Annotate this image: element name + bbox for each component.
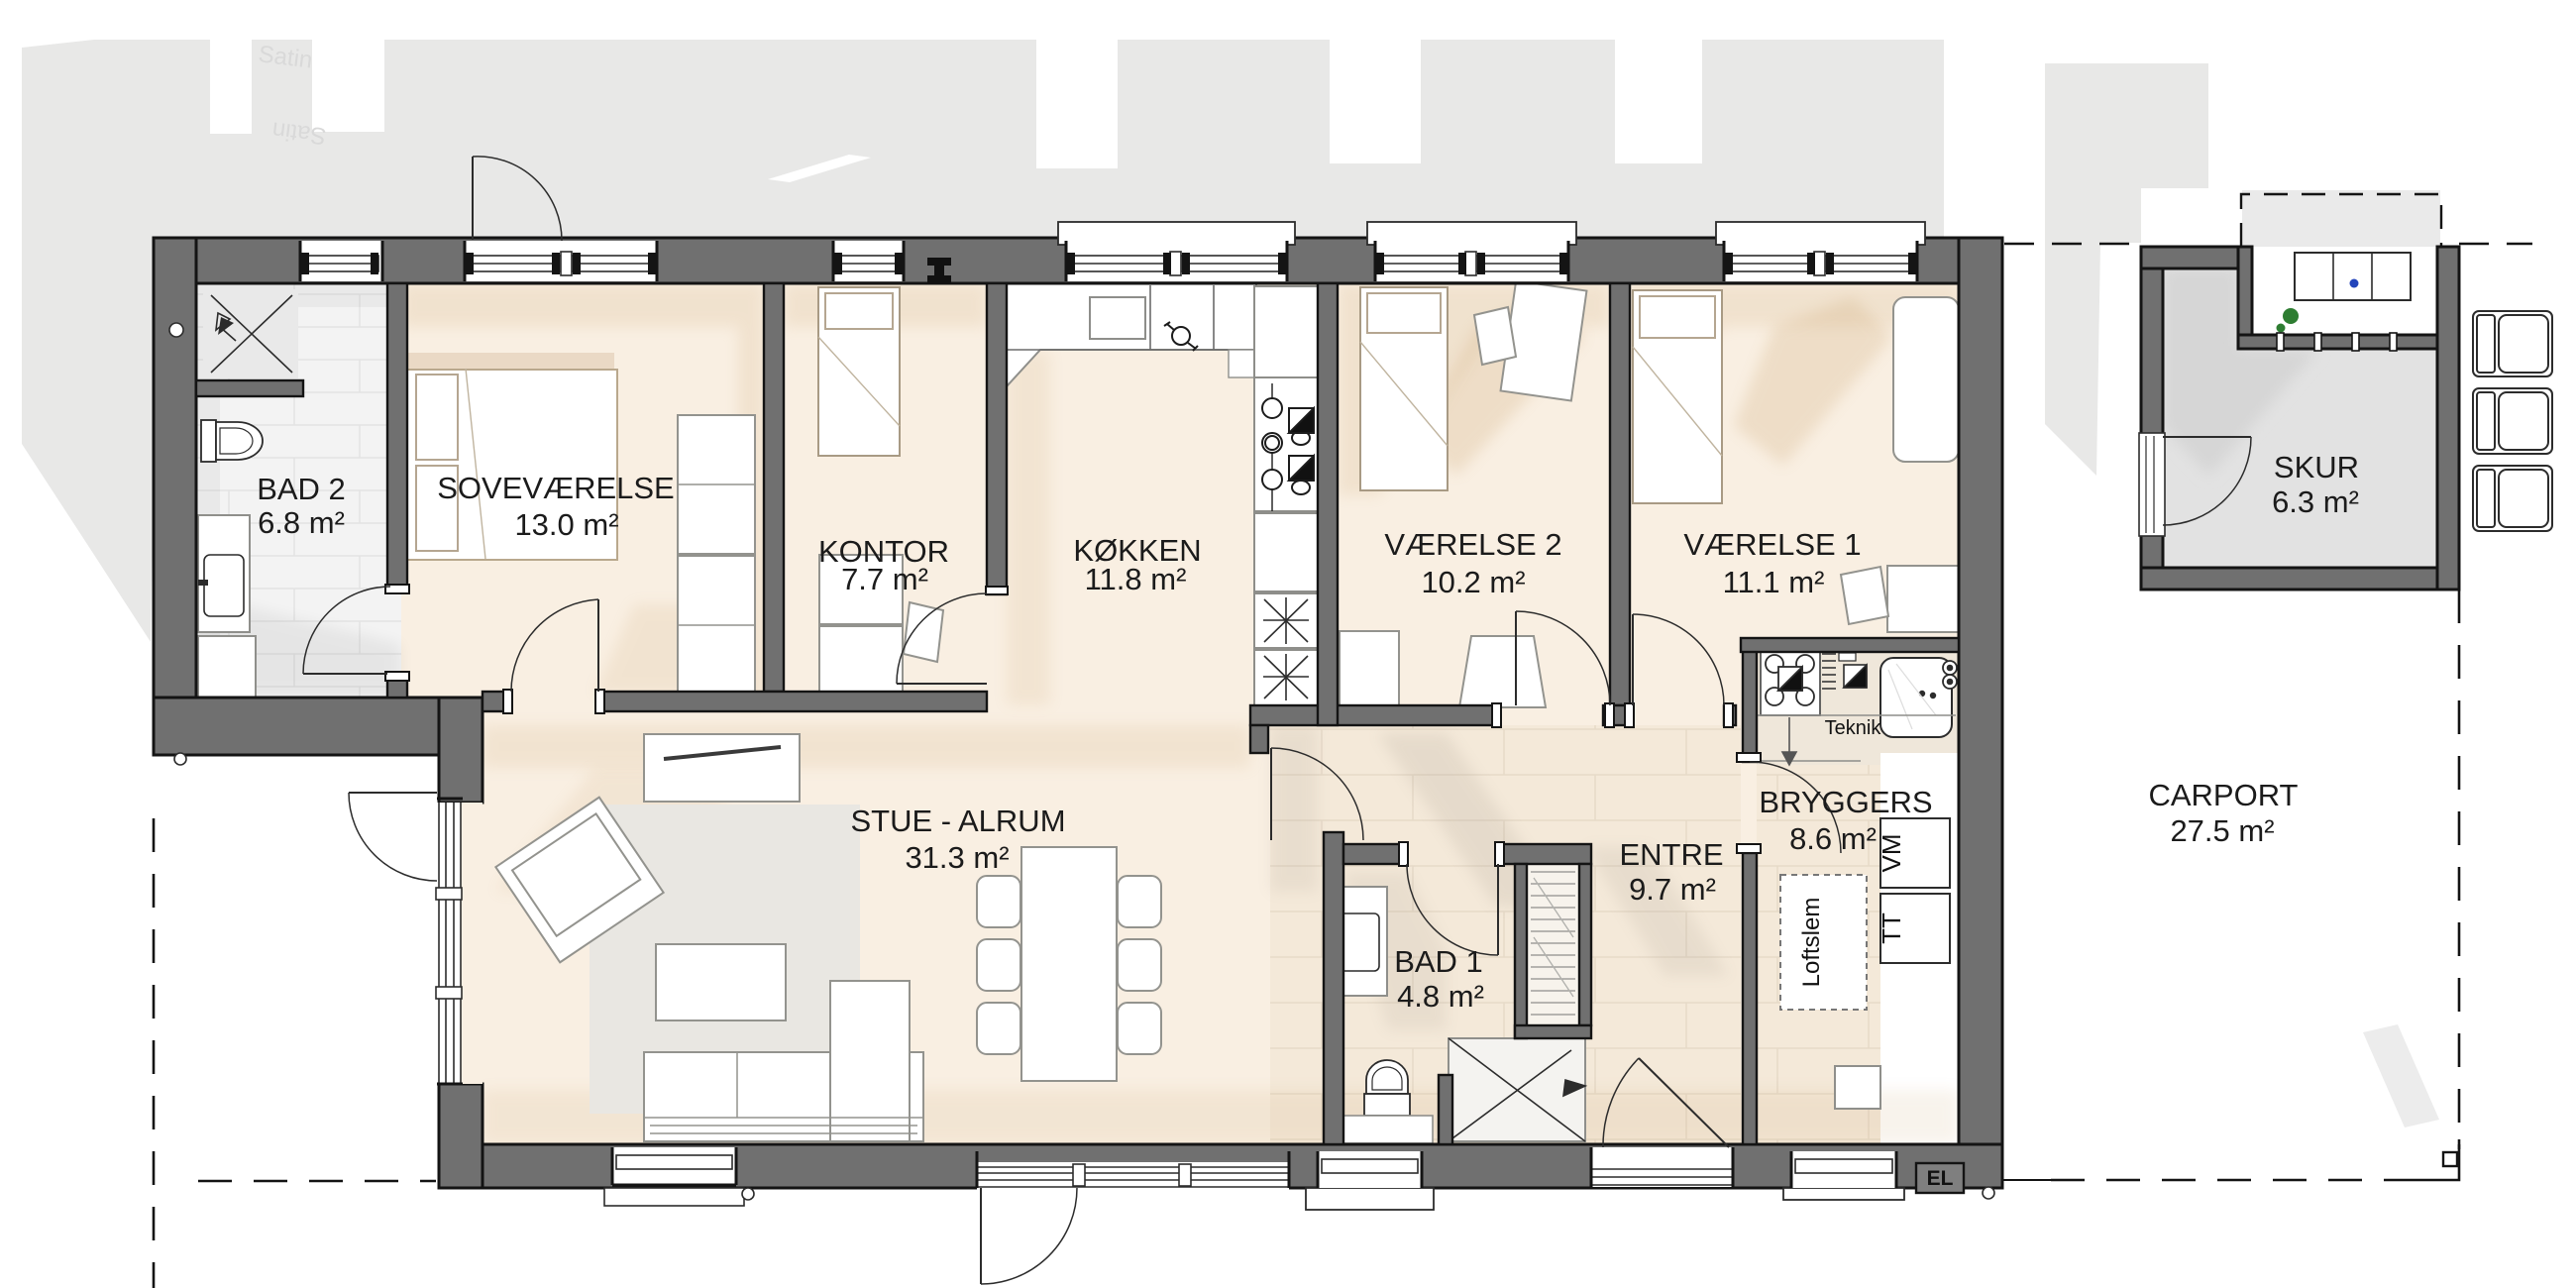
svg-text:BAD 2: BAD 2 bbox=[257, 472, 346, 506]
svg-text:ENTRE: ENTRE bbox=[1619, 837, 1723, 872]
svg-text:13.0 m²: 13.0 m² bbox=[514, 507, 618, 542]
svg-text:31.3 m²: 31.3 m² bbox=[905, 840, 1009, 875]
svg-text:VÆRELSE 2: VÆRELSE 2 bbox=[1384, 527, 1561, 562]
svg-text:BAD 1: BAD 1 bbox=[1394, 944, 1483, 979]
svg-text:11.1 m²: 11.1 m² bbox=[1723, 565, 1825, 599]
svg-text:27.5 m²: 27.5 m² bbox=[2170, 813, 2274, 848]
svg-text:6.3 m²: 6.3 m² bbox=[2272, 484, 2359, 519]
svg-text:EL: EL bbox=[1927, 1167, 1954, 1190]
svg-text:Loftslem: Loftslem bbox=[1798, 898, 1825, 988]
svg-text:TT: TT bbox=[1877, 912, 1906, 944]
svg-text:SOVEVÆRELSE: SOVEVÆRELSE bbox=[437, 471, 674, 505]
svg-text:Teknik: Teknik bbox=[1825, 717, 1882, 739]
svg-text:9.7 m²: 9.7 m² bbox=[1629, 872, 1716, 907]
svg-text:6.8 m²: 6.8 m² bbox=[258, 505, 345, 540]
svg-text:VM: VM bbox=[1877, 834, 1906, 873]
svg-text:SKUR: SKUR bbox=[2274, 450, 2359, 484]
svg-text:4.8 m²: 4.8 m² bbox=[1397, 979, 1484, 1014]
svg-text:8.6 m²: 8.6 m² bbox=[1789, 821, 1877, 856]
svg-text:7.7 m²: 7.7 m² bbox=[841, 562, 928, 596]
svg-text:VÆRELSE 1: VÆRELSE 1 bbox=[1683, 527, 1861, 562]
svg-text:11.8 m²: 11.8 m² bbox=[1085, 562, 1187, 596]
svg-text:BRYGGERS: BRYGGERS bbox=[1759, 785, 1932, 819]
svg-text:CARPORT: CARPORT bbox=[2148, 778, 2298, 812]
svg-text:10.2 m²: 10.2 m² bbox=[1421, 565, 1525, 599]
svg-text:STUE - ALRUM: STUE - ALRUM bbox=[850, 804, 1065, 838]
